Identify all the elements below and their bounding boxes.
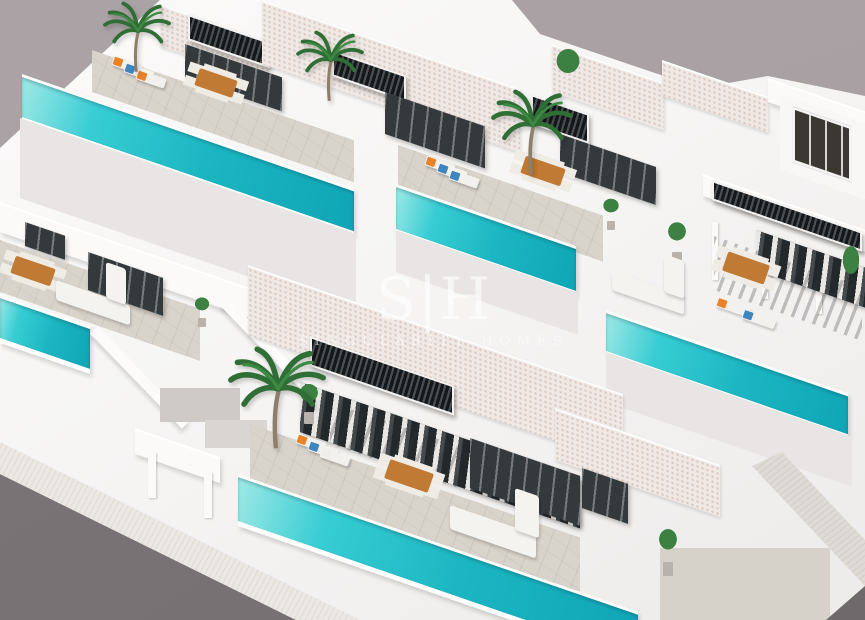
watermark-company: SINGULARITY HOMES (274, 334, 594, 349)
entrance-post (148, 452, 156, 498)
towel-orange (717, 298, 728, 308)
villa8-patio (660, 548, 830, 620)
potted-plant (598, 194, 624, 230)
watermark: S|H SINGULARITY HOMES (274, 268, 594, 349)
shrub (550, 42, 586, 80)
palm-tree (292, 26, 368, 112)
potted-plant (190, 293, 214, 327)
towel-blue (437, 164, 448, 174)
palm-tree (95, 2, 179, 78)
towel-blue (743, 310, 754, 320)
outdoor-sofa-arm (106, 262, 126, 305)
outdoor-sofa-arm (664, 254, 684, 299)
render-scene: S|H SINGULARITY HOMES (0, 0, 865, 620)
watermark-monogram: S|H (274, 268, 594, 330)
potted-plant (653, 522, 683, 576)
towel-blue (449, 171, 460, 181)
palm-tree (486, 78, 578, 194)
towel-orange (425, 157, 436, 167)
shrub (838, 238, 864, 282)
entrance-post (204, 472, 212, 518)
outdoor-sofa-arm (515, 488, 539, 538)
